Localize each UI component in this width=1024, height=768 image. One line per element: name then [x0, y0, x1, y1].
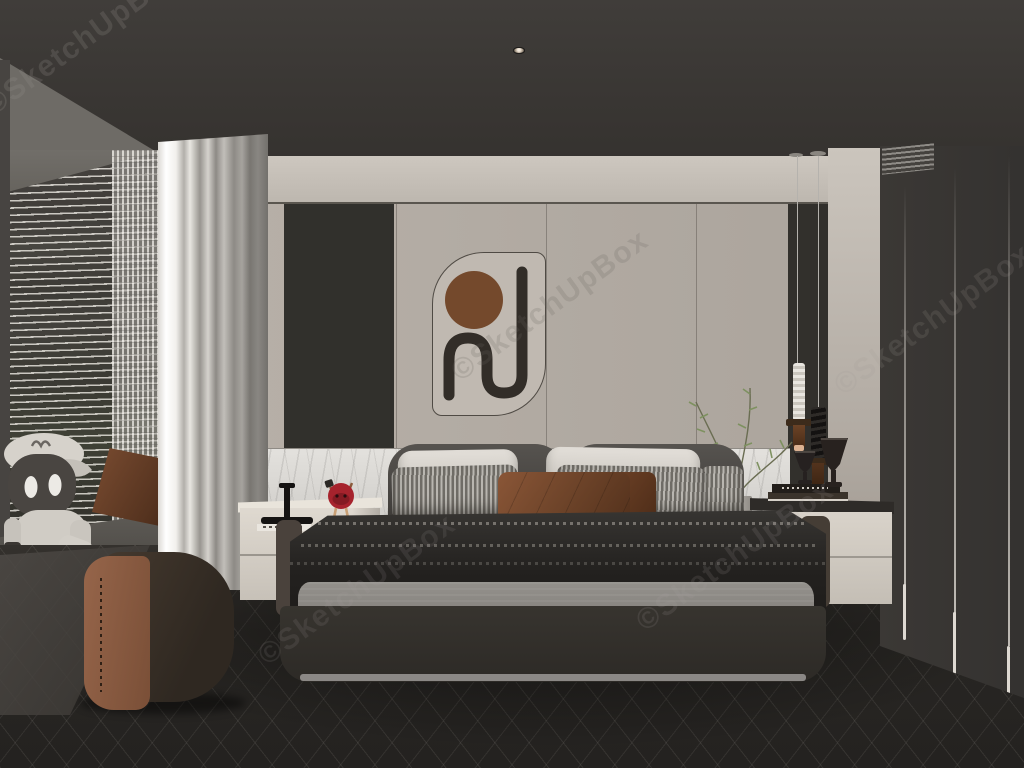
wall-panel-seam — [546, 204, 547, 448]
duvet-stitch-row — [301, 544, 816, 547]
bed-base-strip — [300, 674, 806, 681]
wardrobe-handle — [903, 584, 906, 640]
pendant-mount — [789, 153, 803, 157]
wall-art-graphic — [433, 253, 545, 415]
bed-frame — [280, 606, 826, 682]
ottoman-stitching — [100, 578, 102, 692]
duvet-stitch-row — [311, 522, 804, 525]
wall-panel-seam — [396, 204, 397, 448]
wardrobe-door-seam — [954, 168, 956, 614]
wardrobe — [880, 146, 1024, 712]
pendant-cord — [818, 156, 819, 410]
recessed-light-icon — [513, 47, 525, 54]
wall-soffit-band — [256, 156, 880, 204]
pendant-cord — [797, 156, 798, 364]
pillow-striped-far-right — [700, 466, 744, 518]
ac-vent-grille — [882, 143, 934, 174]
wall-art-panel — [432, 252, 546, 416]
wardrobe-door-seam — [1008, 156, 1010, 646]
wardrobe-door-seam — [904, 186, 906, 586]
table-lamp-stem — [284, 486, 290, 520]
duvet-stitch-row — [290, 562, 826, 565]
bedroom-render: ©SketchUpBox ©SketchUpBox ©SketchUpBox ©… — [0, 0, 1024, 768]
goblet-vases — [786, 434, 858, 494]
accent-panel-left — [284, 204, 394, 448]
leather-ottoman-panel — [84, 556, 150, 710]
wardrobe-handle — [953, 612, 956, 674]
